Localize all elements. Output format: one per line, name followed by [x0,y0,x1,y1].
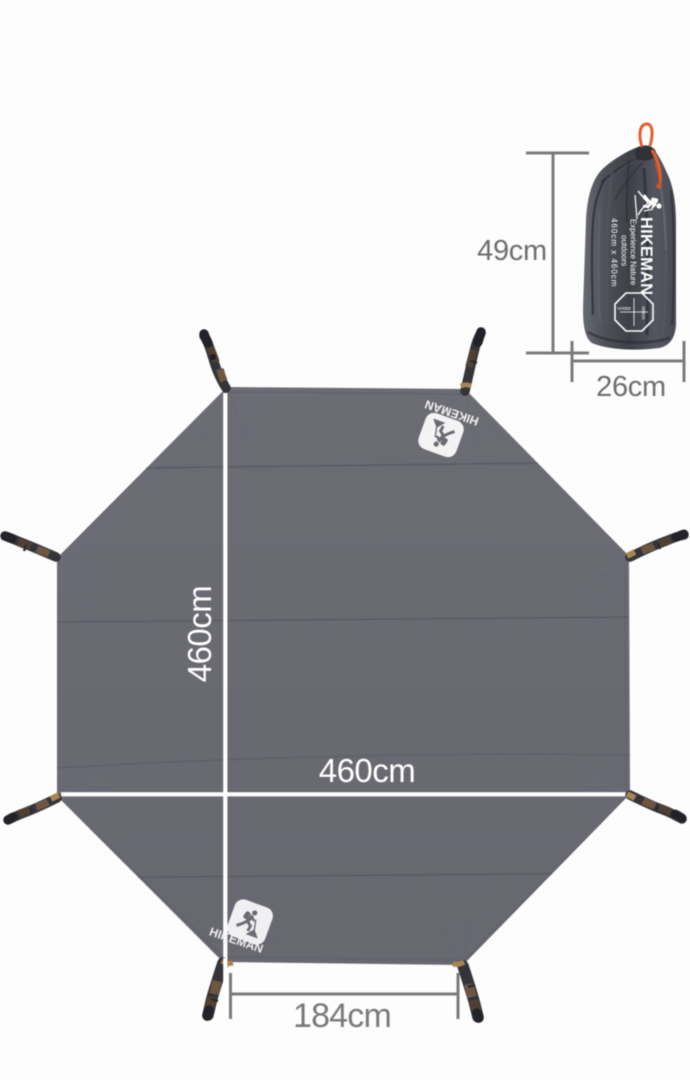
svg-text:460cm: 460cm [319,752,416,789]
svg-text:outdoors: outdoors [620,235,629,266]
svg-text:460cm: 460cm [617,306,631,311]
svg-text:Experience Nature: Experience Nature [629,219,638,286]
svg-text:460cm: 460cm [641,306,646,320]
svg-text:460cm x 460cm: 460cm x 460cm [610,218,619,287]
svg-text:26cm: 26cm [596,371,666,403]
svg-text:HIKEMAN: HIKEMAN [637,217,655,295]
svg-text:460cm: 460cm [181,586,218,683]
svg-text:49cm: 49cm [477,235,547,267]
svg-text:184cm: 184cm [293,997,391,1035]
